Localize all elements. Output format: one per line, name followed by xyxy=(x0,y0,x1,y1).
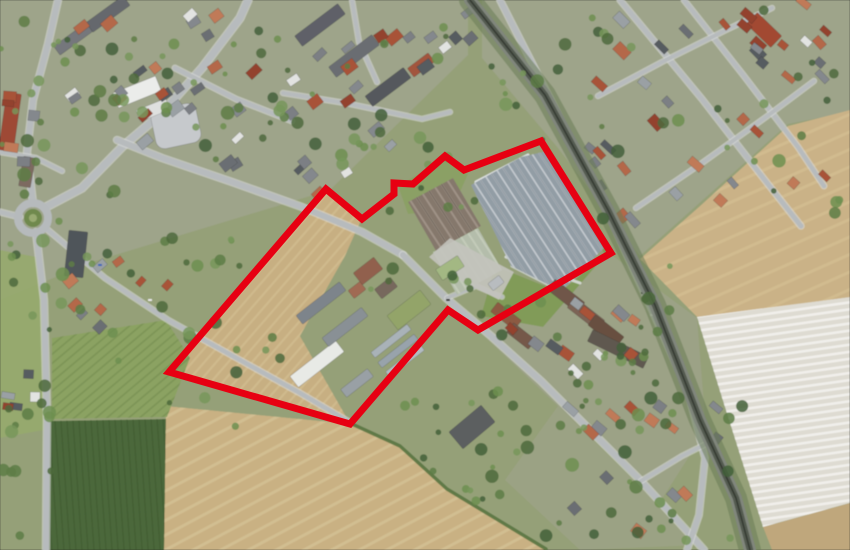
tree xyxy=(508,400,518,410)
tree xyxy=(556,520,562,526)
tree xyxy=(627,43,636,52)
tree xyxy=(190,79,197,86)
tree xyxy=(618,445,632,459)
tree xyxy=(496,329,507,340)
tree xyxy=(584,380,594,390)
tree xyxy=(7,241,13,247)
tree xyxy=(213,156,219,162)
tree xyxy=(606,507,617,518)
tree xyxy=(616,343,626,353)
tree xyxy=(94,85,107,98)
tree xyxy=(17,168,31,182)
tree xyxy=(632,527,644,539)
tree xyxy=(589,14,596,21)
tree xyxy=(137,106,148,117)
tree xyxy=(231,41,237,47)
tree xyxy=(268,120,273,125)
tree xyxy=(40,283,50,293)
tree xyxy=(726,534,733,541)
tree xyxy=(336,158,348,170)
aerial-photo xyxy=(0,0,850,550)
tree xyxy=(583,398,589,404)
tree xyxy=(233,346,241,354)
tree xyxy=(56,267,70,281)
tree xyxy=(635,426,644,435)
tree xyxy=(611,144,625,158)
tree xyxy=(602,33,614,45)
tree xyxy=(31,157,40,166)
tree xyxy=(759,5,769,15)
tree xyxy=(386,207,394,215)
car-dot xyxy=(148,299,152,301)
tree xyxy=(530,74,544,88)
tree xyxy=(192,123,199,130)
tree xyxy=(72,43,78,49)
tree xyxy=(664,305,674,315)
tree xyxy=(75,304,85,314)
tree xyxy=(495,490,505,500)
tree xyxy=(64,37,70,43)
tree xyxy=(108,94,121,107)
tree xyxy=(348,118,361,131)
tree xyxy=(20,189,30,199)
aerial-map-annotation xyxy=(0,0,850,550)
tree xyxy=(360,143,368,151)
tree xyxy=(169,39,180,50)
tree xyxy=(485,470,498,483)
tree xyxy=(262,346,269,353)
tree xyxy=(667,263,673,269)
tree xyxy=(439,23,448,32)
tree xyxy=(468,400,475,407)
tree xyxy=(829,207,841,219)
tree xyxy=(131,36,137,42)
tree xyxy=(725,118,730,123)
tree xyxy=(660,418,671,429)
tree xyxy=(668,518,673,523)
tree xyxy=(27,89,35,97)
tree xyxy=(37,119,44,126)
tree xyxy=(36,234,50,248)
tree xyxy=(653,327,663,337)
tree xyxy=(565,458,579,472)
tree xyxy=(69,261,75,267)
tree xyxy=(387,262,399,274)
tree xyxy=(83,252,92,261)
tree xyxy=(228,236,234,242)
tree xyxy=(464,278,472,286)
tree xyxy=(759,99,768,108)
tree xyxy=(559,38,572,51)
tree xyxy=(638,325,643,330)
car-dot xyxy=(98,264,102,266)
tree xyxy=(771,188,777,194)
tree xyxy=(106,43,119,56)
tree xyxy=(521,441,534,454)
tree xyxy=(6,467,16,477)
tree xyxy=(520,70,526,76)
tree xyxy=(493,386,503,396)
tree xyxy=(37,398,47,408)
tree xyxy=(60,57,70,67)
tree xyxy=(723,412,735,424)
tree xyxy=(447,270,457,280)
tree xyxy=(110,76,118,84)
tree xyxy=(714,105,722,113)
tree xyxy=(722,465,733,476)
tree xyxy=(108,185,121,198)
tree xyxy=(199,139,212,152)
tree xyxy=(183,259,189,265)
tree xyxy=(285,67,291,73)
tree xyxy=(159,53,165,59)
tree xyxy=(579,403,585,409)
tree xyxy=(220,123,226,129)
tree xyxy=(823,97,830,104)
tree xyxy=(589,529,599,539)
tree xyxy=(630,370,635,375)
tree xyxy=(21,134,34,147)
tree xyxy=(601,354,608,361)
tree xyxy=(8,253,16,261)
tree xyxy=(76,162,88,174)
tree xyxy=(556,421,566,431)
tree xyxy=(291,117,303,129)
tree xyxy=(443,202,453,212)
tree xyxy=(127,269,135,277)
tree xyxy=(436,429,442,435)
tree xyxy=(629,359,637,367)
tree xyxy=(400,401,410,411)
tree xyxy=(5,425,18,438)
tree xyxy=(256,48,266,58)
tree xyxy=(599,124,604,129)
tree xyxy=(433,403,440,410)
tree xyxy=(513,448,520,455)
tree xyxy=(56,39,62,45)
tree xyxy=(499,79,506,86)
tree xyxy=(385,278,392,285)
tree xyxy=(38,139,51,152)
roundabout-center xyxy=(29,214,37,222)
tree xyxy=(368,286,374,292)
tree xyxy=(475,443,488,456)
tree xyxy=(236,263,242,269)
tree xyxy=(644,391,657,404)
tree xyxy=(162,68,174,80)
tree xyxy=(183,327,195,339)
tree xyxy=(375,109,387,121)
tree xyxy=(108,328,118,338)
tree xyxy=(568,370,574,376)
tree xyxy=(420,454,427,461)
tree xyxy=(411,398,419,406)
tree xyxy=(275,353,285,363)
tree xyxy=(499,98,512,111)
tree xyxy=(166,232,178,244)
tree xyxy=(375,127,386,138)
tree xyxy=(47,467,54,474)
tree xyxy=(654,497,665,508)
tree xyxy=(349,133,361,145)
tree xyxy=(223,71,228,76)
tree xyxy=(5,405,13,413)
tree xyxy=(724,145,730,151)
house xyxy=(3,142,18,153)
tree xyxy=(587,94,593,100)
tree xyxy=(629,480,642,493)
tree xyxy=(56,297,67,308)
tree xyxy=(488,63,494,69)
tree xyxy=(167,400,172,405)
tree xyxy=(641,295,649,303)
tree xyxy=(268,333,277,342)
tree xyxy=(772,154,785,167)
tree xyxy=(672,114,685,127)
tree xyxy=(432,53,444,65)
tree xyxy=(553,332,562,341)
tree xyxy=(102,249,112,259)
tree xyxy=(835,196,843,204)
tree xyxy=(370,144,376,150)
tree xyxy=(230,366,242,378)
tree xyxy=(215,254,226,265)
house xyxy=(23,370,33,379)
tree xyxy=(199,392,210,403)
tree xyxy=(540,529,553,542)
tree xyxy=(480,496,486,502)
tree xyxy=(33,75,44,86)
tree xyxy=(12,108,18,114)
tree xyxy=(232,423,239,430)
house xyxy=(17,157,30,167)
tree xyxy=(344,63,350,69)
tree xyxy=(490,465,495,470)
tree xyxy=(55,218,62,225)
tree xyxy=(89,260,96,267)
tree xyxy=(641,348,648,355)
tree xyxy=(22,408,34,420)
tree xyxy=(28,311,37,320)
tree xyxy=(797,131,806,140)
photo-layers xyxy=(0,0,850,550)
tree xyxy=(156,301,168,313)
tree xyxy=(632,408,645,421)
tree xyxy=(681,535,691,545)
tree xyxy=(267,92,278,103)
tree xyxy=(273,105,285,117)
tree xyxy=(615,419,626,430)
tree xyxy=(125,52,133,60)
tree xyxy=(658,117,669,128)
tree xyxy=(309,91,315,97)
tree xyxy=(274,36,281,43)
car-dot xyxy=(446,299,450,301)
tree xyxy=(430,468,437,475)
tree xyxy=(221,106,235,120)
tree xyxy=(380,39,389,48)
tree xyxy=(672,392,684,404)
tree xyxy=(467,487,473,493)
tree xyxy=(668,509,677,518)
tree xyxy=(43,406,56,419)
tree xyxy=(466,285,473,292)
tree xyxy=(553,64,563,74)
tree xyxy=(47,327,52,332)
tree xyxy=(471,197,479,205)
tree xyxy=(657,524,666,533)
tree xyxy=(115,358,121,364)
tree xyxy=(645,515,652,522)
tree xyxy=(521,425,532,436)
tree xyxy=(652,379,659,386)
tree xyxy=(15,531,24,540)
tree xyxy=(597,212,609,224)
tree xyxy=(736,400,748,412)
tree xyxy=(51,42,57,48)
tree xyxy=(95,109,107,121)
house xyxy=(2,100,14,107)
tree xyxy=(161,102,172,113)
tree xyxy=(829,69,839,79)
tree xyxy=(617,352,625,360)
tree xyxy=(477,310,486,319)
tree xyxy=(497,430,504,437)
tree xyxy=(19,16,30,27)
tree xyxy=(809,59,815,65)
tree xyxy=(576,428,582,434)
tree xyxy=(595,398,602,405)
tree xyxy=(503,91,508,96)
tree xyxy=(254,26,263,35)
tree xyxy=(259,134,267,142)
tree xyxy=(38,379,50,391)
tree xyxy=(573,379,582,388)
tree xyxy=(794,72,803,81)
tree xyxy=(70,107,79,116)
tree xyxy=(512,102,520,110)
tree xyxy=(119,111,130,122)
tree xyxy=(668,409,676,417)
tree xyxy=(309,137,322,150)
tree xyxy=(9,278,18,287)
tree xyxy=(418,185,424,191)
tree xyxy=(35,177,43,185)
tree xyxy=(443,34,448,39)
tree xyxy=(472,496,481,505)
tree xyxy=(129,73,140,84)
tree xyxy=(422,142,433,153)
tree xyxy=(582,362,591,371)
tree xyxy=(459,204,464,209)
tree xyxy=(234,103,244,113)
tree xyxy=(191,260,203,272)
tree xyxy=(751,158,758,165)
tree xyxy=(414,131,426,143)
